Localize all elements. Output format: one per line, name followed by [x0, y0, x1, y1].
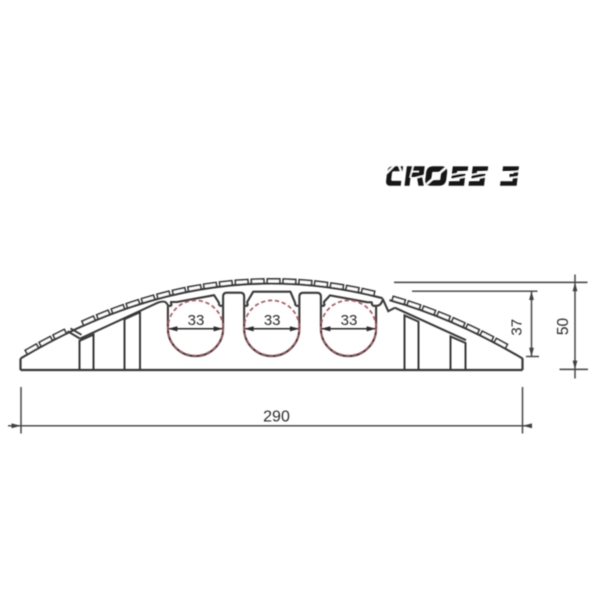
svg-text:290: 290 [263, 409, 290, 426]
svg-text:37: 37 [509, 319, 526, 336]
svg-text:50: 50 [555, 318, 572, 336]
svg-text:33: 33 [341, 312, 358, 329]
svg-text:33: 33 [188, 312, 205, 329]
svg-text:33: 33 [264, 312, 281, 329]
